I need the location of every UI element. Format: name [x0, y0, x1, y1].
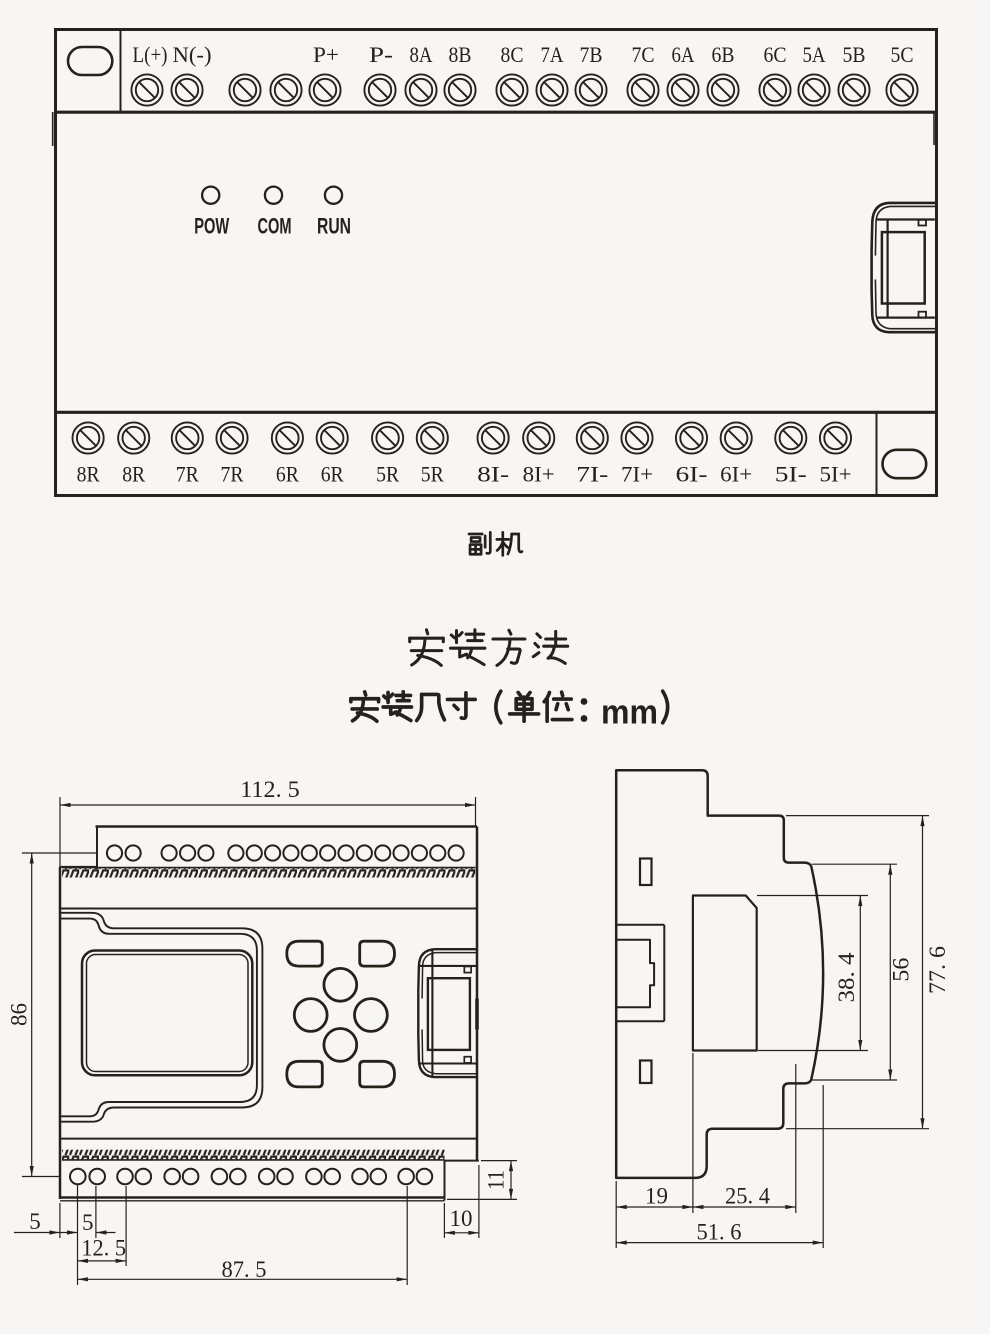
svg-text:5: 5 [29, 1209, 41, 1234]
svg-text:12. 5: 12. 5 [81, 1236, 126, 1261]
svg-text:6B: 6B [712, 42, 735, 67]
svg-text:56: 56 [889, 958, 914, 982]
svg-text:7R: 7R [221, 462, 244, 487]
svg-text:6I+: 6I+ [720, 462, 752, 487]
svg-text:77. 6: 77. 6 [925, 946, 950, 994]
svg-text:8I-: 8I- [477, 462, 509, 487]
svg-text:6R: 6R [321, 462, 344, 487]
svg-text:38. 4: 38. 4 [834, 952, 859, 1003]
svg-text:5R: 5R [421, 462, 444, 487]
svg-text:RUN: RUN [317, 214, 351, 239]
svg-text:87. 5: 87. 5 [222, 1257, 267, 1282]
svg-text:5I-: 5I- [775, 462, 807, 487]
svg-text:5I+: 5I+ [820, 462, 852, 487]
svg-text:7I-: 7I- [576, 462, 608, 487]
svg-text:8C: 8C [501, 42, 524, 67]
svg-text:8A: 8A [410, 42, 433, 67]
svg-text:51. 6: 51. 6 [697, 1220, 742, 1245]
svg-text:POW: POW [194, 214, 229, 239]
svg-text:6R: 6R [276, 462, 299, 487]
svg-text:5A: 5A [803, 42, 826, 67]
svg-text:7I+: 7I+ [621, 462, 653, 487]
svg-text:8R: 8R [77, 462, 100, 487]
svg-text:L(+): L(+) [133, 42, 168, 67]
svg-text:N(-): N(-) [173, 42, 212, 67]
svg-text:10: 10 [450, 1206, 473, 1231]
svg-text:COM: COM [258, 214, 292, 239]
svg-text:P+: P+ [313, 42, 339, 67]
svg-text:5R: 5R [376, 462, 399, 487]
svg-text:5B: 5B [843, 42, 866, 67]
svg-text:11: 11 [484, 1170, 509, 1190]
svg-text:5: 5 [82, 1210, 94, 1235]
svg-text:7C: 7C [632, 42, 655, 67]
svg-text:8I+: 8I+ [523, 462, 555, 487]
svg-text:mm: mm [601, 694, 658, 732]
svg-text:7B: 7B [580, 42, 603, 67]
svg-text:7R: 7R [176, 462, 199, 487]
svg-text:8B: 8B [449, 42, 472, 67]
svg-text:P-: P- [369, 42, 393, 67]
svg-text:6A: 6A [672, 42, 695, 67]
svg-text:7A: 7A [541, 42, 564, 67]
svg-text:6I-: 6I- [676, 462, 708, 487]
svg-text:5C: 5C [891, 42, 914, 67]
svg-text:8R: 8R [122, 462, 145, 487]
svg-text:19: 19 [645, 1184, 668, 1209]
svg-text:112. 5: 112. 5 [240, 777, 300, 802]
svg-text:25. 4: 25. 4 [725, 1184, 770, 1209]
svg-text:86: 86 [7, 1003, 32, 1026]
svg-text:6C: 6C [764, 42, 787, 67]
